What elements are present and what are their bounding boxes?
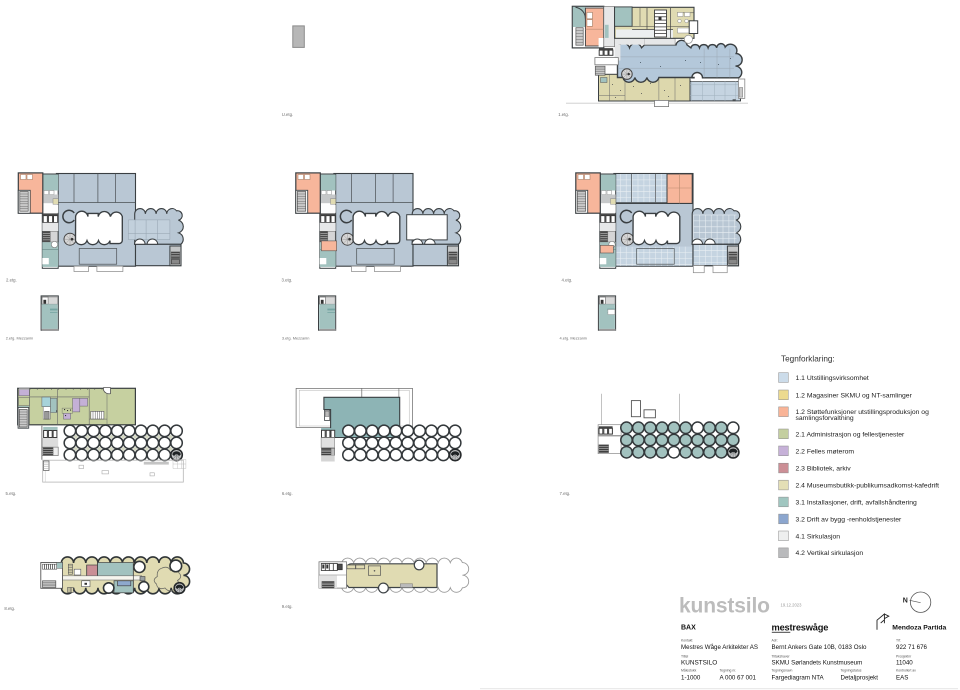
- svg-text:Fargediagram NTA: Fargediagram NTA: [772, 675, 825, 682]
- svg-text:6.etg.: 6.etg.: [282, 491, 293, 496]
- svg-text:A 000 67 001: A 000 67 001: [720, 675, 757, 682]
- svg-text:Kontakt: Kontakt: [681, 639, 693, 643]
- svg-text:KUNSTSILO: KUNSTSILO: [681, 660, 717, 667]
- svg-text:U.etg.: U.etg.: [282, 112, 293, 117]
- svg-text:3.etg.: 3.etg.: [282, 278, 293, 283]
- svg-text:N: N: [903, 598, 908, 605]
- svg-text:Bernt Ankers Gate 10B, 0183 Os: Bernt Ankers Gate 10B, 0183 Oslo: [772, 644, 867, 651]
- svg-text:Målestokk: Målestokk: [681, 669, 697, 673]
- svg-text:samlingsforvaltning: samlingsforvaltning: [796, 415, 854, 422]
- svg-text:4.1 Sirkulasjon: 4.1 Sirkulasjon: [796, 533, 841, 540]
- svg-text:3.1 Installasjoner, drift, avf: 3.1 Installasjoner, drift, avfallshåndte…: [796, 498, 918, 506]
- svg-text:EAS: EAS: [896, 675, 908, 682]
- svg-text:4.etg.: 4.etg.: [562, 278, 573, 283]
- svg-text:Kontrollert av: Kontrollert av: [896, 669, 916, 673]
- svg-text:Detaljprosjekt: Detaljprosjekt: [841, 675, 879, 682]
- svg-text:Adr:: Adr:: [772, 639, 778, 643]
- svg-text:2.4 Museumsbutikk-publikumsadk: 2.4 Museumsbutikk-publikumsadkomst-kafed…: [796, 483, 940, 490]
- svg-text:922 71 676: 922 71 676: [896, 644, 928, 651]
- svg-text:19.12.2023: 19.12.2023: [781, 603, 803, 608]
- svg-text:SKMU Sørlandets Kunstmuseum: SKMU Sørlandets Kunstmuseum: [772, 660, 863, 667]
- svg-text:2.3 Bibliotek, arkiv: 2.3 Bibliotek, arkiv: [796, 466, 852, 473]
- svg-text:Tlf:: Tlf:: [896, 639, 901, 643]
- svg-text:1.2 Magasiner SKMU og NT-samli: 1.2 Magasiner SKMU og NT-samlinger: [796, 392, 913, 399]
- svg-text:BAX: BAX: [681, 625, 696, 632]
- svg-text:Tegnforklaring:: Tegnforklaring:: [781, 355, 835, 364]
- svg-text:2.2 Felles møterom: 2.2 Felles møterom: [796, 448, 855, 455]
- svg-text:Tiltakshaver: Tiltakshaver: [772, 654, 791, 658]
- svg-text:1-1000: 1-1000: [681, 675, 701, 682]
- svg-text:8.etg.: 8.etg.: [4, 606, 15, 611]
- svg-text:1.1 Utstillingsvirksomhet: 1.1 Utstillingsvirksomhet: [796, 375, 869, 382]
- svg-text:4.etg. Mezzanin: 4.etg. Mezzanin: [560, 336, 587, 341]
- svg-text:11040: 11040: [896, 660, 913, 667]
- svg-text:Mestres Wåge Arkitekter AS: Mestres Wåge Arkitekter AS: [681, 644, 758, 651]
- svg-text:4.2 Vertikal sirkulasjon: 4.2 Vertikal sirkulasjon: [796, 550, 864, 557]
- svg-text:3.2 Drift av bygg -renholdstje: 3.2 Drift av bygg -renholdstjenester: [796, 516, 903, 523]
- svg-text:Mendoza Partida: Mendoza Partida: [892, 625, 946, 632]
- svg-text:Tegning nr.: Tegning nr.: [720, 669, 737, 673]
- svg-text:9.etg.: 9.etg.: [282, 604, 293, 609]
- svg-text:Prosjektnr: Prosjektnr: [896, 654, 912, 658]
- svg-text:2.1 Administrasjon og fellestj: 2.1 Administrasjon og fellestjenester: [796, 431, 906, 438]
- svg-text:7.etg.: 7.etg.: [560, 491, 571, 496]
- svg-text:5.etg.: 5.etg.: [6, 491, 17, 496]
- svg-text:Tittel: Tittel: [681, 654, 688, 658]
- svg-text:3.etg. Mezzanin: 3.etg. Mezzanin: [282, 336, 309, 341]
- svg-text:1.etg.: 1.etg.: [558, 112, 569, 117]
- svg-text:2.etg.: 2.etg.: [6, 278, 17, 283]
- svg-text:2.etg. Mezzanin: 2.etg. Mezzanin: [6, 336, 33, 341]
- svg-text:Tegningstatus: Tegningstatus: [841, 669, 862, 673]
- svg-text:mestreswåge: mestreswåge: [772, 623, 829, 633]
- svg-text:kunstsilo: kunstsilo: [679, 595, 770, 618]
- svg-text:Tegningsnavn: Tegningsnavn: [772, 669, 793, 673]
